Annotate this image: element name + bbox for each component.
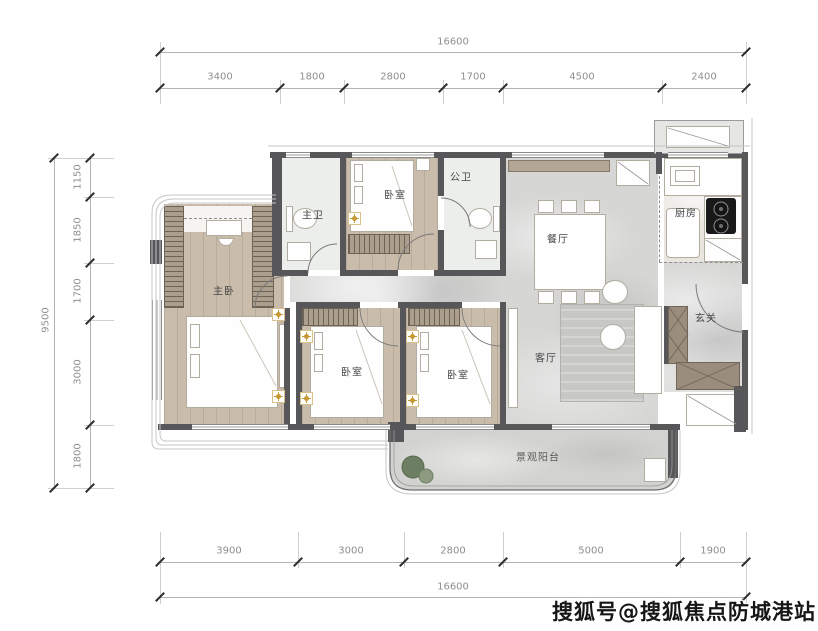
dim-left-seg-3: 1700: [73, 278, 84, 303]
dim-line-bottom-segments: [160, 562, 746, 563]
extension-line: [443, 80, 444, 104]
room-label-master-bath: 主卫: [302, 207, 324, 222]
sink: [475, 240, 497, 259]
window: [352, 152, 434, 158]
ceiling-light-icon: [272, 308, 285, 321]
wall: [340, 152, 346, 276]
extension-line: [280, 80, 281, 104]
window: [512, 152, 604, 158]
toilet-tank: [286, 206, 293, 232]
dim-left-total: 9500: [41, 307, 52, 332]
ceiling-light-icon: [406, 330, 419, 343]
ac-unit: [644, 458, 666, 482]
dining-table: [534, 214, 606, 290]
lounge-chair: [602, 280, 628, 304]
pillow: [354, 186, 363, 204]
chair: [561, 200, 577, 213]
wall: [272, 158, 282, 270]
wardrobe: [164, 206, 184, 308]
wall: [296, 302, 302, 424]
dim-line-top-total: [160, 52, 746, 53]
wall: [742, 152, 748, 284]
dim-top-seg-4: 1700: [460, 72, 485, 83]
wall: [346, 270, 398, 276]
sink: [287, 242, 311, 261]
toilet: [468, 208, 492, 229]
wardrobe: [348, 234, 410, 254]
dim-bottom-seg-1: 3900: [216, 546, 241, 557]
chair: [538, 200, 554, 213]
wall: [500, 152, 506, 270]
wall-pier: [150, 240, 162, 264]
dim-left-seg-2: 1850: [73, 217, 84, 242]
wall: [158, 424, 192, 430]
wall: [272, 270, 308, 276]
coffee-table: [600, 324, 626, 350]
closet-dashed-line: [184, 218, 252, 219]
wall: [438, 152, 444, 196]
ceiling-light-icon: [272, 390, 285, 403]
wall: [288, 424, 304, 430]
room-label-bedroom-left: 卧室: [341, 364, 363, 379]
foyer-cabinet: [668, 306, 688, 364]
chair: [584, 291, 600, 304]
dim-top-seg-2: 1800: [299, 72, 324, 83]
dim-top-total: 16600: [437, 37, 469, 48]
kitchen-sink-basin: [675, 170, 695, 182]
ceiling-light-icon: [348, 212, 361, 225]
wall: [304, 424, 314, 430]
room-label-balcony: 景观阳台: [516, 449, 560, 464]
kitchen-cabinet: [704, 238, 742, 262]
storage-cabinet: [616, 160, 650, 186]
wall: [656, 152, 662, 174]
window: [286, 152, 310, 158]
pillow: [190, 354, 200, 378]
dim-bottom-seg-2: 3000: [338, 546, 363, 557]
pillow: [190, 324, 200, 348]
watermark: 搜狐号@搜狐焦点防城港站: [552, 596, 816, 626]
sideboard: [508, 160, 610, 172]
wall: [438, 270, 506, 276]
wall: [296, 302, 360, 308]
room-label-dining: 餐厅: [547, 231, 569, 246]
room-label-foyer: 玄关: [695, 310, 717, 325]
wall: [664, 306, 668, 364]
shoe-cabinet: [676, 362, 740, 390]
dim-top-seg-3: 2800: [380, 72, 405, 83]
kitchen-dashed-line: [659, 262, 743, 263]
wardrobe: [408, 308, 460, 326]
sliding-door: [552, 424, 650, 430]
dim-left-seg-5: 1800: [73, 443, 84, 468]
room-label-bedroom-top: 卧室: [384, 187, 406, 202]
extension-line: [48, 488, 114, 489]
extension-line: [344, 80, 345, 104]
room-label-public-bath: 公卫: [450, 169, 472, 184]
nightstand: [416, 158, 430, 171]
chair: [561, 291, 577, 304]
stove: [706, 198, 736, 234]
tv-console: [508, 308, 518, 408]
wall: [284, 308, 290, 424]
dim-line-left-total: [54, 158, 55, 488]
pillow: [354, 164, 363, 182]
window: [416, 424, 494, 430]
dim-top-seg-6: 2400: [691, 72, 716, 83]
dim-bottom-seg-5: 1900: [700, 546, 725, 557]
chair: [584, 200, 600, 213]
dim-top-seg-1: 3400: [207, 72, 232, 83]
room-label-bedroom-right: 卧室: [447, 367, 469, 382]
window: [152, 300, 162, 400]
dim-bottom-seg-3: 2800: [440, 546, 465, 557]
wall: [388, 422, 404, 442]
window: [668, 152, 728, 158]
room-label-kitchen: 厨房: [675, 205, 697, 220]
dim-left-seg-4: 3000: [73, 359, 84, 384]
wall: [668, 424, 678, 478]
dim-top-seg-5: 4500: [569, 72, 594, 83]
kitchen-dashed-line: [659, 176, 660, 262]
dresser: [206, 220, 242, 236]
room-label-living: 客厅: [535, 350, 557, 365]
wall: [506, 424, 552, 430]
wardrobe: [302, 308, 358, 326]
ceiling-light-icon: [300, 392, 313, 405]
extension-line: [662, 80, 663, 104]
rug: [560, 304, 644, 402]
dim-bottom-total: 16600: [437, 582, 469, 593]
wall: [406, 302, 462, 308]
wall: [734, 386, 746, 432]
ceiling-light-icon: [406, 394, 419, 407]
stair-shaft: [686, 394, 738, 426]
corridor-floor: [290, 276, 506, 302]
window: [314, 424, 390, 430]
window: [192, 424, 288, 430]
sofa: [634, 306, 662, 394]
room-label-master-bedroom: 主卧: [213, 283, 235, 298]
toilet-tank: [493, 206, 500, 232]
wall: [406, 424, 416, 430]
dim-line-left-segments: [90, 158, 91, 488]
dim-bottom-seg-4: 5000: [578, 546, 603, 557]
pillow: [420, 354, 429, 372]
ceiling-light-icon: [300, 330, 313, 343]
high-window: [666, 126, 730, 148]
pillow: [314, 354, 323, 372]
pillow: [420, 332, 429, 350]
floor-plan-canvas: 16600 3400 1800 2800 1700 4500 2400 9500…: [0, 0, 818, 631]
dim-left-seg-1: 1150: [73, 164, 84, 189]
wall: [494, 424, 506, 430]
extension-line: [503, 80, 504, 104]
wardrobe: [252, 206, 274, 308]
pillow: [314, 332, 323, 350]
extension-line: [48, 158, 114, 159]
chair: [538, 291, 554, 304]
wall: [500, 302, 506, 424]
